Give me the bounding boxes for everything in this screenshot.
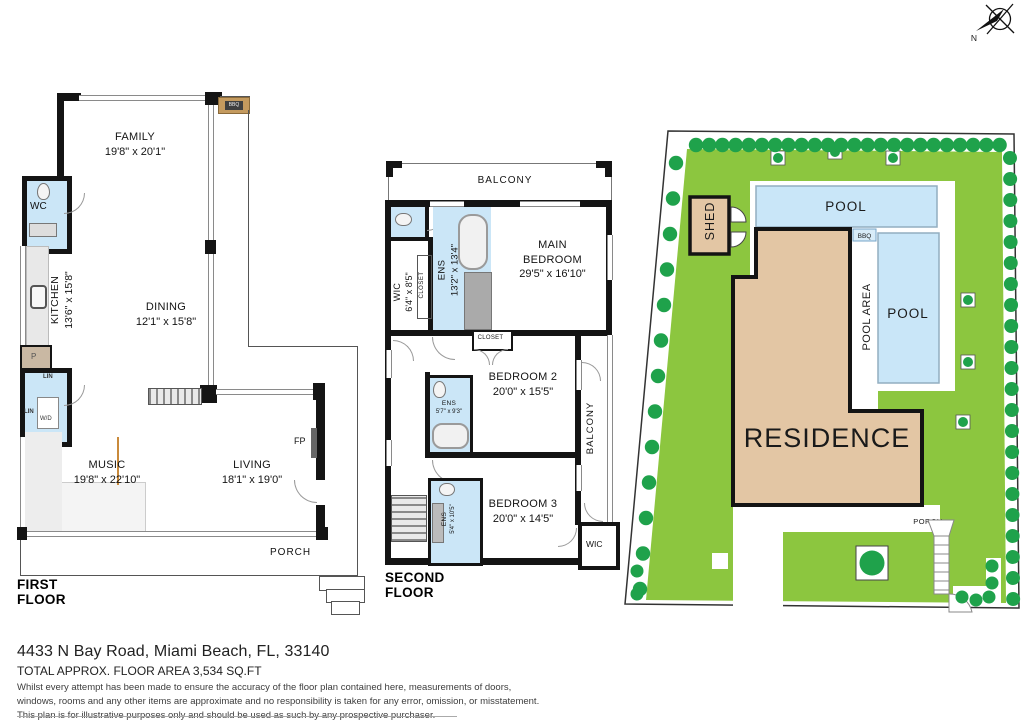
tree-icon — [1006, 508, 1020, 522]
address-line: 4433 N Bay Road, Miami Beach, FL, 33140 — [17, 643, 330, 661]
pool-right-label: POOL — [887, 306, 929, 321]
door-arc — [64, 193, 85, 214]
tree-icon — [728, 138, 742, 152]
tree-icon — [888, 153, 898, 163]
pool-area-label: POOL AREA — [861, 283, 873, 350]
tree-icon — [648, 404, 662, 418]
tree-icon — [986, 560, 999, 573]
tree-icon — [956, 591, 969, 604]
fireplace-label: FP — [294, 436, 306, 446]
tree-icon — [1003, 172, 1017, 186]
fireplace-icon — [311, 428, 317, 458]
door-arc — [582, 362, 601, 381]
tree-icon — [794, 138, 808, 152]
tree-icon — [1003, 193, 1017, 207]
tree-icon — [958, 417, 968, 427]
tree-icon — [642, 475, 656, 489]
tree-icon — [1005, 445, 1019, 459]
room-label-main-bedroom: MAIN BEDROOM 29'5" x 16'10" — [495, 238, 610, 282]
wall — [316, 505, 325, 535]
patio-outline — [248, 346, 358, 347]
wc-label: WC — [30, 201, 47, 212]
tree-icon — [1006, 550, 1020, 564]
step — [331, 601, 360, 615]
second-floor-title: SECOND FLOOR — [385, 570, 445, 600]
bbq-unit: BBQ — [218, 97, 250, 114]
tree-icon — [657, 298, 671, 312]
tree-icon — [821, 138, 835, 152]
tree-icon — [808, 138, 822, 152]
tree-icon — [715, 138, 729, 152]
porch-label: PORCH — [270, 547, 311, 558]
door-arc — [64, 385, 85, 406]
tree-icon — [953, 138, 967, 152]
tree-icon — [1005, 382, 1019, 396]
toilet-icon — [433, 381, 446, 398]
tree-icon — [663, 227, 677, 241]
wall — [386, 161, 393, 177]
room-label-dining: DINING 12'1" x 15'8" — [111, 300, 221, 329]
tree-icon — [1004, 235, 1018, 249]
compass-n-label: N — [971, 33, 977, 43]
stepping-pad — [938, 330, 955, 341]
wd-label: W/D — [40, 416, 52, 422]
tree-icon — [755, 138, 769, 152]
wall — [17, 527, 27, 540]
bbq-box-label: BBQ — [858, 233, 872, 240]
vanity-icon — [464, 272, 492, 330]
stepping-pads — [938, 232, 955, 389]
tree-icon — [940, 138, 954, 152]
door-arc — [558, 528, 577, 547]
tree-icon — [1004, 256, 1018, 270]
wc-room: WC — [22, 176, 72, 254]
tree-icon — [1006, 529, 1020, 543]
room-label-ens-main: ENS 13'2" x 13'4" — [437, 223, 465, 318]
tree-icon — [631, 565, 644, 578]
tree-icon — [874, 138, 888, 152]
door-arc — [474, 349, 490, 365]
site-plan: POOL POOL BBQ POOL AREA RESIDENCE SHED P… — [600, 100, 1024, 630]
room-label-bedroom2: BEDROOM 2 20'0" x 15'5" — [468, 370, 578, 399]
toilet-room — [391, 207, 429, 241]
tree-icon — [636, 546, 650, 560]
room-label-ens2: ENS 5'7" x 9'3" — [432, 400, 466, 416]
linen-label: LIN — [43, 374, 53, 380]
wall — [57, 93, 64, 177]
ens2-room: ENS 5'7" x 9'3" — [430, 375, 473, 453]
floor-area-line: TOTAL APPROX. FLOOR AREA 3,534 SQ.FT — [17, 664, 262, 678]
tree-icon — [1005, 424, 1019, 438]
paver-square — [712, 553, 728, 569]
door-arc — [432, 337, 455, 360]
footer-divider — [17, 716, 457, 717]
stepping-pad — [938, 346, 955, 357]
entry-slab — [62, 482, 146, 532]
tree-icon — [1005, 361, 1019, 375]
site-steps — [934, 536, 949, 594]
tree-icon — [654, 333, 668, 347]
door-arc — [492, 349, 508, 365]
tree-icon — [1005, 403, 1019, 417]
tree-icon — [639, 511, 653, 525]
tree-icon — [963, 295, 973, 305]
tree-icon — [1004, 298, 1018, 312]
closet-label: CLOSET — [474, 335, 507, 343]
room-label-family: FAMILY 19'8" x 20'1" — [75, 130, 195, 159]
staircase — [148, 388, 202, 405]
wall — [313, 383, 325, 400]
tree-icon — [966, 138, 980, 152]
wall — [205, 240, 216, 254]
sliding-door-wall — [24, 531, 318, 537]
tree-icon — [900, 138, 914, 152]
stepping-pad — [938, 248, 955, 259]
sink-icon — [29, 223, 57, 237]
stepping-pad — [938, 302, 955, 313]
room-label-living: LIVING 18'1" x 19'0" — [197, 458, 307, 487]
tree-icon — [773, 153, 783, 163]
tree-icon — [669, 156, 683, 170]
tree-icon — [666, 191, 680, 205]
tree-icon — [913, 138, 927, 152]
tree-icon — [1006, 571, 1020, 585]
tree-icon — [860, 138, 874, 152]
stepping-pad — [938, 286, 955, 297]
balcony-right-label: BALCONY — [585, 378, 599, 478]
toilet-icon — [395, 213, 412, 226]
room-label-bedroom3: BEDROOM 3 20'0" x 14'5" — [468, 497, 578, 526]
patio-outline — [220, 96, 250, 97]
walkway — [733, 532, 783, 612]
tree-icon — [742, 138, 756, 152]
wall — [200, 385, 217, 403]
tree-icon — [768, 138, 782, 152]
sink-icon — [30, 285, 47, 309]
tree-icon — [1005, 466, 1019, 480]
balcony-top-label: BALCONY — [450, 174, 560, 187]
tree-icon — [1006, 592, 1020, 606]
stepping-pad — [938, 378, 955, 389]
tree-icon — [992, 138, 1006, 152]
lawn-tree-planter — [856, 546, 888, 580]
bathtub-icon — [432, 423, 469, 449]
bbq-label: BBQ — [225, 101, 243, 110]
tree-icon — [1004, 277, 1018, 291]
staircase — [391, 495, 427, 542]
tree-icon — [1004, 340, 1018, 354]
room-label-ens3: ENS 5'4" x 10'5" — [441, 489, 463, 549]
tree-icon — [651, 369, 665, 383]
tree-icon — [986, 577, 999, 590]
patio-outline — [248, 110, 249, 347]
tree-icon — [860, 551, 885, 576]
tree-icon — [1003, 214, 1017, 228]
porch-strip — [733, 505, 940, 532]
window — [386, 350, 392, 378]
pantry-label: P — [31, 352, 36, 361]
closet-label: CLOSET — [419, 257, 429, 313]
door-arc — [393, 340, 414, 361]
shed-label: SHED — [703, 202, 717, 241]
tree-icon — [702, 138, 716, 152]
tree-icon — [834, 138, 848, 152]
tree-icon — [963, 357, 973, 367]
window — [576, 465, 582, 491]
tree-icon — [1004, 319, 1018, 333]
tree-icon — [983, 591, 996, 604]
tree-icon — [847, 138, 861, 152]
tree-icon — [689, 138, 703, 152]
residence-label: RESIDENCE — [744, 423, 911, 453]
stepping-pad — [938, 264, 955, 275]
compass: N — [950, 0, 1020, 55]
window — [520, 201, 580, 207]
toilet-icon — [37, 183, 50, 200]
pool-top-label: POOL — [825, 199, 867, 214]
tree-icon — [926, 138, 940, 152]
first-floor-title: FIRST FLOOR — [17, 577, 66, 607]
window — [79, 95, 207, 101]
wall — [425, 452, 580, 458]
linen-label: LIN — [24, 409, 34, 415]
washer-dryer: W/D — [37, 397, 59, 429]
tree-icon — [645, 440, 659, 454]
tree-icon — [1005, 487, 1019, 501]
window — [386, 440, 392, 466]
room-label-music: MUSIC 19'8" x 22'10" — [52, 458, 162, 487]
stepping-pad — [938, 232, 955, 243]
stepping-pad — [938, 362, 955, 373]
tree-icon — [887, 138, 901, 152]
tree-icon — [781, 138, 795, 152]
window — [216, 389, 315, 395]
hall-closet: CLOSET — [472, 330, 513, 351]
tree-icon — [979, 138, 993, 152]
kitchen-counter — [26, 246, 49, 347]
room-label-kitchen: KITCHEN 13'6" x 15'8" — [49, 245, 83, 355]
tree-icon — [970, 594, 983, 607]
tree-icon — [1003, 151, 1017, 165]
tree-icon — [660, 262, 674, 276]
tree-icon — [631, 588, 644, 601]
floor-plan-sheet: BBQ WC P LIN LIN W/D — [0, 0, 1024, 724]
room-label-wic: WIC 6'4" x 8'5" — [392, 257, 418, 327]
